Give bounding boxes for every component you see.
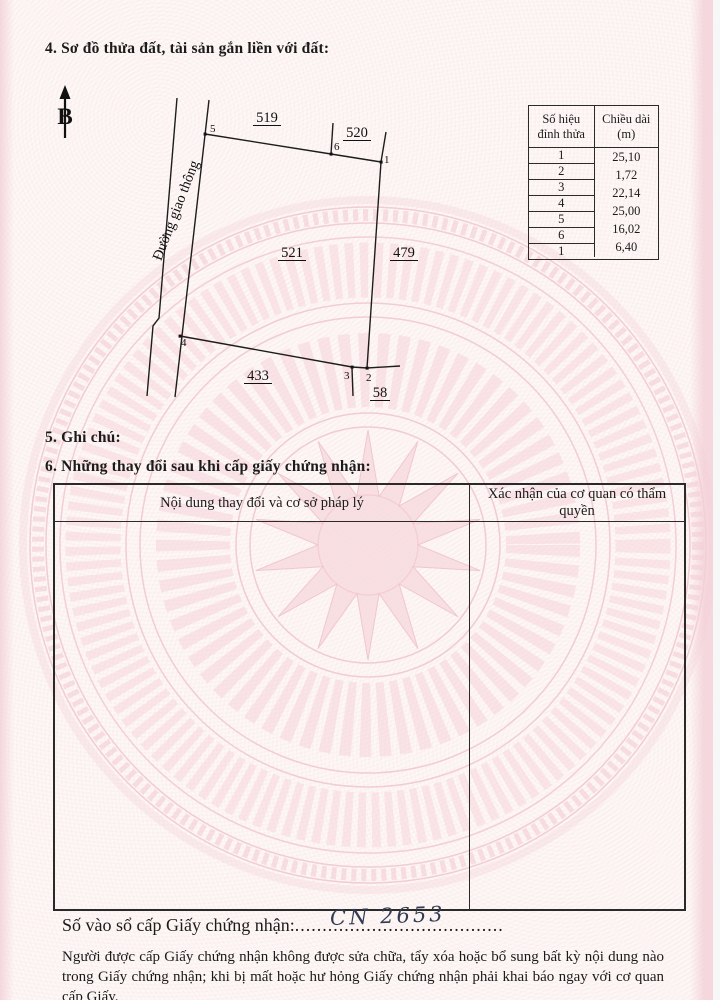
north-arrow-icon: B: [50, 84, 80, 142]
length-cell: 25,00: [612, 204, 640, 219]
changes-confirmation-cell: [469, 522, 684, 911]
road-label: Đường giao thông: [150, 158, 203, 262]
parcel-label-58: 58: [373, 385, 388, 401]
length-column: 25,10 1,72 22,14 25,00 16,02 6,40: [594, 148, 659, 257]
register-label: Số vào sổ cấp Giấy chứng nhận:: [62, 915, 295, 935]
parcel-diagram: 5 6 1 2 3 4 519 520 521 479 433 58 Đường…: [120, 85, 440, 415]
side-length-table: Số hiệu đỉnh thửa Chiều dài (m) 1 2 3 4 …: [528, 105, 659, 260]
changes-col1-header: Nội dung thay đổi và cơ sở pháp lý: [55, 485, 469, 521]
section4-title: 4. Sơ đồ thửa đất, tài sản gắn liền với …: [45, 40, 329, 58]
vertex-label-6: 6: [334, 141, 340, 153]
vertex-cell: 1: [529, 148, 594, 163]
vertex-cell: 5: [529, 211, 594, 227]
dotted-leader: ......: [295, 915, 328, 935]
length-cell: 1,72: [615, 168, 637, 183]
divider-479-58: [367, 366, 400, 368]
section6-title: 6. Những thay đổi sau khi cấp giấy chứng…: [45, 458, 371, 476]
divider-433-58: [352, 368, 353, 396]
vertex-number-column: 1 2 3 4 5 6 1: [529, 148, 594, 257]
handwritten-register-number: CN 2653: [329, 902, 445, 930]
length-cell: 16,02: [612, 222, 640, 237]
north-label: B: [57, 104, 72, 129]
vertex-dot-6: [330, 153, 333, 156]
parcel-label-520: 520: [346, 125, 368, 141]
vertex-label-4: 4: [181, 337, 187, 349]
vertex-cell: 2: [529, 163, 594, 179]
register-line: Số vào sổ cấp Giấy chứng nhận:......CN 2…: [62, 915, 504, 936]
divider-519-520: [331, 123, 333, 154]
side-table-col2-header: Chiều dài (m): [594, 106, 659, 147]
parcel-label-433: 433: [247, 368, 269, 384]
vertex-cell: 3: [529, 179, 594, 195]
side-table-col1-header: Số hiệu đỉnh thửa: [529, 106, 594, 147]
vertex-cell: 6: [529, 227, 594, 243]
section5-title: 5. Ghi chú:: [45, 429, 121, 447]
vertex-label-5: 5: [210, 123, 216, 135]
length-cell: 22,14: [612, 186, 640, 201]
parcel-label-519: 519: [256, 110, 278, 126]
footer-note: Người được cấp Giấy chứng nhận không đượ…: [62, 948, 664, 1000]
page-edge-left: [0, 0, 14, 1000]
vertex-dot-1: [380, 161, 383, 164]
parcel-label-479: 479: [393, 245, 415, 261]
changes-content-cell: [55, 522, 469, 911]
vertex-dot-2: [366, 367, 369, 370]
parcel-label-521: 521: [281, 245, 303, 261]
length-cell: 6,40: [615, 240, 637, 255]
vertex-dot-5: [204, 133, 207, 136]
certificate-page: 4. Sơ đồ thửa đất, tài sản gắn liền với …: [0, 0, 720, 1000]
changes-col2-header: Xác nhận của cơ quan có thẩm quyền: [469, 485, 684, 521]
vertex-label-1: 1: [384, 154, 390, 166]
length-cell: 25,10: [612, 150, 640, 165]
parcel-right-edge: [367, 132, 386, 368]
page-edge-right: [690, 0, 720, 1000]
road-right-edge: [175, 100, 209, 397]
vertex-cell: 1: [529, 243, 594, 259]
vertex-cell: 4: [529, 195, 594, 211]
parcel-bottom-edge: [180, 336, 367, 368]
vertex-dot-3: [351, 366, 354, 369]
changes-table: Nội dung thay đổi và cơ sở pháp lý Xác n…: [53, 483, 686, 911]
vertex-label-3: 3: [344, 370, 350, 382]
vertex-label-2: 2: [366, 372, 372, 384]
